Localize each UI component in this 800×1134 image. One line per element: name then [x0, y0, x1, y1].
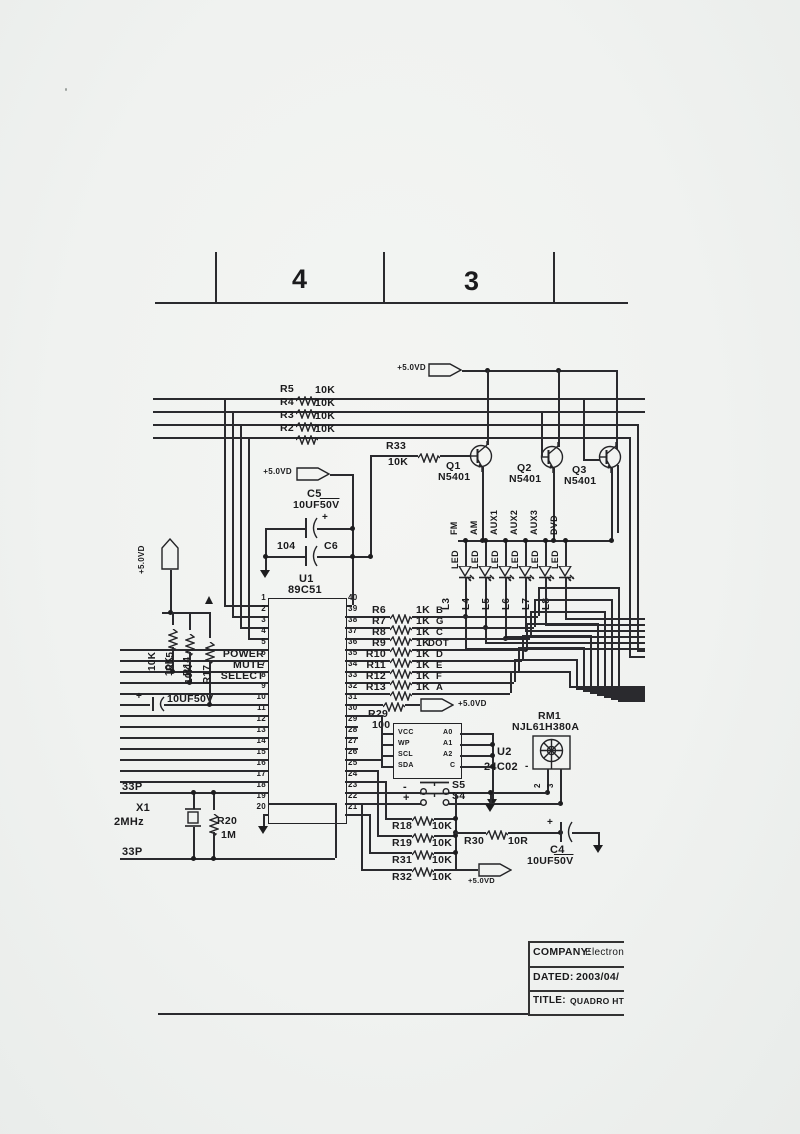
pin-number: 3: [236, 616, 266, 624]
plus-sign: +: [136, 692, 142, 702]
wire: [345, 759, 381, 761]
pin-number: 20: [236, 803, 266, 811]
wire: [330, 474, 352, 476]
pin-name-mute: MUTE: [214, 660, 264, 671]
transistor-ref: Q1: [446, 461, 461, 472]
wire: [553, 252, 555, 302]
wire: [369, 814, 371, 852]
led-function-label: AUX2: [510, 510, 519, 535]
power-net-label: +5.0VD: [468, 877, 495, 885]
wire: [345, 726, 358, 728]
wire: [305, 518, 307, 538]
resistor-value: 10K: [432, 821, 452, 832]
resistor-value: 1K: [416, 627, 430, 638]
wire: [412, 693, 510, 695]
resistor-value: 10K: [148, 652, 158, 671]
resistor-ref: R11: [352, 660, 386, 671]
junction-dot: [368, 554, 373, 559]
junction-dot: [211, 790, 216, 795]
resistor-ref: R12: [352, 671, 386, 682]
resistor-value: 10K: [432, 838, 452, 849]
wire: [604, 611, 606, 696]
resistor-symbol: [412, 813, 434, 831]
wire: [120, 704, 150, 706]
transistor-part: N5401: [564, 476, 596, 487]
led-icon: [458, 566, 476, 587]
net-label: G: [436, 617, 444, 627]
wire: [120, 770, 268, 772]
junction-dot: [263, 554, 268, 559]
switch-ref: S5: [452, 780, 465, 791]
ir-pin-label: 3: [547, 783, 555, 788]
wire: [510, 671, 569, 673]
u2-pin-label: VCC: [398, 729, 414, 736]
resistor-value: 1K: [416, 671, 430, 682]
zone-label-3: 3: [464, 268, 479, 295]
ic-ref: U2: [497, 747, 512, 758]
resistor-ref: R32: [392, 872, 412, 883]
resistor-value: 10R: [508, 836, 528, 847]
capacitor-icon: [156, 696, 166, 717]
wire: [611, 599, 613, 698]
wire: [265, 528, 267, 570]
wire: [604, 696, 645, 698]
wire: [213, 792, 215, 810]
resistor-value: 10K: [165, 657, 175, 676]
led-label: LED: [531, 550, 540, 569]
wire: [465, 540, 467, 566]
resistor-value: 10K: [315, 424, 335, 435]
cap-value: 33P: [122, 847, 142, 858]
wire: [590, 635, 592, 692]
wire: [224, 398, 226, 605]
resistor-ref: R3: [272, 410, 294, 421]
wire: [560, 769, 562, 803]
wire: [565, 540, 567, 566]
wire: [505, 540, 507, 566]
ground-icon: [260, 570, 270, 578]
resistor-ref: R19: [392, 838, 412, 849]
junction-dot: [453, 850, 458, 855]
ir-pin-label: 2: [534, 783, 542, 788]
wire: [510, 671, 512, 693]
led-function-label: AUX3: [530, 510, 539, 535]
wire: [583, 459, 600, 461]
wire: [482, 467, 484, 540]
power-net-label: +5.0VD: [252, 468, 292, 476]
net-label: C: [436, 628, 443, 638]
led-icon: [498, 566, 516, 587]
switch-s4-icon: [419, 791, 451, 811]
resistor-symbol: [412, 847, 434, 865]
net-label: DOT: [428, 639, 449, 649]
wire: [617, 465, 619, 533]
wire: [485, 578, 487, 642]
junction-dot: [609, 538, 614, 543]
resistor-value: 1M: [221, 830, 236, 841]
wire: [616, 370, 618, 449]
u2-pin-label: WP: [398, 740, 410, 747]
wire: [405, 704, 420, 706]
junction-dot: [350, 526, 355, 531]
wire: [381, 766, 393, 768]
wire: [189, 612, 191, 630]
wire: [377, 770, 379, 835]
wire: [381, 744, 393, 746]
wire: [155, 302, 628, 304]
wire: [120, 748, 268, 750]
resistor-ref: R33: [386, 441, 406, 452]
junction-dot: [490, 742, 495, 747]
wire: [522, 635, 590, 637]
u2-pin-label: A1: [443, 740, 453, 747]
wire: [597, 694, 645, 696]
pin-name-power: POWER: [214, 649, 264, 660]
led-ref: L7: [522, 598, 532, 610]
wire: [583, 647, 585, 690]
resistor-ref: R13: [352, 682, 386, 693]
wire: [158, 1013, 528, 1015]
wire: [583, 398, 585, 459]
zone-label-4: 4: [292, 266, 307, 293]
led-icon: [538, 566, 556, 587]
wire: [352, 474, 354, 605]
wire: [558, 370, 560, 447]
junction-dot: [480, 538, 485, 543]
led-ref: L3: [442, 598, 452, 610]
resistor-symbol: [412, 864, 434, 882]
wire: [345, 748, 358, 750]
wire: [526, 623, 597, 625]
wire: [152, 697, 154, 711]
ir-ref: RM1: [538, 711, 561, 722]
led-ref: L6: [502, 598, 512, 610]
led-label: LED: [471, 550, 480, 569]
wire: [305, 546, 307, 566]
junction-dot: [551, 538, 556, 543]
wire: [583, 690, 645, 692]
wire: [611, 698, 645, 700]
wire: [153, 398, 583, 400]
led-icon: [478, 566, 496, 587]
resistor-value: 10K: [432, 872, 452, 883]
junction-dot: [563, 538, 568, 543]
wire: [485, 642, 645, 644]
resistor-value: 10K: [315, 385, 335, 396]
wire: [412, 627, 534, 629]
wire: [590, 692, 645, 694]
resistor-ref: R2: [272, 423, 294, 434]
junction-dot: [490, 753, 495, 758]
wire: [597, 623, 599, 694]
wire: [569, 671, 571, 686]
wire: [455, 832, 486, 834]
wire: [576, 688, 645, 690]
wire: [345, 704, 383, 706]
dated-value: 2003/04/: [576, 972, 619, 983]
wire: [569, 686, 645, 688]
junction-dot: [211, 856, 216, 861]
transistor-part: N5401: [509, 474, 541, 485]
cap-value: 10UF50V: [527, 856, 573, 867]
wire: [534, 599, 611, 601]
junction-dot: [503, 538, 508, 543]
junction-dot: [191, 790, 196, 795]
resistor-value: 1K: [416, 649, 430, 660]
cap-value: 104: [277, 541, 295, 552]
led-label: LED: [511, 550, 520, 569]
wire: [583, 398, 645, 400]
wire: [508, 832, 560, 834]
transistor-part: N5401: [438, 472, 470, 483]
dated-label: DATED:: [533, 972, 574, 983]
title-block: COMPANY: Electron DATED: 2003/04/ TITLE:…: [528, 941, 624, 1017]
wire: [381, 715, 383, 766]
junction-dot: [191, 856, 196, 861]
resistor-value: 1K: [416, 660, 430, 671]
wire: [618, 587, 620, 700]
resistor-symbol: [486, 827, 508, 845]
wire: [317, 528, 352, 530]
junction-dot: [543, 538, 548, 543]
wire: [345, 770, 377, 772]
capacitor-icon: [564, 821, 574, 848]
net-label: A: [436, 683, 443, 693]
resistor-ref: R20: [217, 816, 237, 827]
wire: [120, 759, 268, 761]
resistor-value: 1K: [416, 682, 430, 693]
xtal-ref: X1: [136, 803, 150, 814]
power-net-label: +5.0VD: [396, 364, 426, 372]
ground-icon: [258, 826, 268, 834]
wire: [487, 370, 489, 445]
wire: [381, 755, 393, 757]
power-net-label: +5.0VD: [138, 545, 146, 574]
wire: [381, 733, 393, 735]
wire: [611, 468, 613, 540]
wire: [598, 832, 600, 845]
net-label: F: [436, 672, 442, 682]
company-value: Electron: [585, 948, 624, 958]
wire: [361, 803, 363, 869]
pin-name-select: SELECT: [214, 671, 264, 682]
resistor-ref: R10: [352, 649, 386, 660]
wire: [637, 424, 639, 650]
sign-label: +: [403, 793, 410, 804]
wire: [213, 832, 215, 858]
resistor-value: 1K: [416, 616, 430, 627]
wire: [449, 803, 560, 805]
wire: [120, 715, 268, 717]
wire: [514, 659, 576, 661]
wire: [345, 737, 358, 739]
wire: [618, 700, 645, 702]
wire: [530, 611, 604, 613]
wire: [345, 781, 385, 783]
resistor-ref: R8: [352, 627, 386, 638]
resistor-value: 10K: [185, 665, 195, 684]
wire: [120, 737, 268, 739]
wire: [172, 612, 174, 625]
power-net-label: +5.0VD: [458, 700, 487, 708]
plus-sign: +: [547, 818, 553, 828]
wire: [547, 769, 549, 792]
wire: [345, 814, 369, 816]
resistor-value: 10K: [432, 855, 452, 866]
wire: [525, 630, 645, 632]
wire: [541, 411, 543, 457]
resistor-ref: R4: [272, 397, 294, 408]
wire: [153, 411, 543, 413]
led-ref: L4: [462, 598, 472, 610]
wire: [560, 822, 562, 842]
cap-ref: C6: [324, 541, 338, 552]
transistor-ref: Q2: [517, 463, 532, 474]
led-label: LED: [551, 550, 560, 569]
led-icon: [558, 566, 576, 587]
wire: [545, 540, 547, 566]
transistor-ref: Q3: [572, 465, 587, 476]
led-function-label: DVD: [550, 515, 559, 535]
junction-dot: [207, 702, 212, 707]
pin-number: 1: [236, 594, 266, 602]
junction-dot: [488, 790, 493, 795]
resistor-value: 10K: [315, 411, 335, 422]
resistor-ref: R5: [272, 384, 294, 395]
title-label: TITLE:: [533, 996, 566, 1006]
resistor-ref: R18: [392, 821, 412, 832]
resistor-ref: R7: [352, 616, 386, 627]
wire: [263, 814, 265, 826]
junction-dot: [463, 538, 468, 543]
schematic-sheet: 4 3 COMPANY: Electron DATED: 2003/04/ TI…: [0, 0, 800, 1134]
u2-pin-label: A2: [443, 751, 453, 758]
net-label: E: [436, 661, 443, 671]
wire: [412, 616, 538, 618]
ir-part: NJL61H380A: [512, 722, 579, 733]
net-label: D: [436, 650, 443, 660]
led-function-label: AM: [470, 520, 479, 535]
wire: [153, 424, 637, 426]
resistor-symbol: [418, 450, 440, 468]
wire: [265, 556, 305, 558]
wire: [460, 755, 492, 757]
junction-dot: [523, 538, 528, 543]
power-arrow-icon: [296, 467, 330, 486]
arrow-up-icon: [205, 596, 213, 604]
resistor-ref: R31: [392, 855, 412, 866]
wire: [440, 455, 470, 457]
wire: [370, 455, 372, 556]
led-ref: L5: [482, 598, 492, 610]
led-function-label: FM: [450, 521, 459, 535]
wire: [215, 252, 217, 302]
wire: [637, 650, 645, 652]
wire: [120, 660, 268, 662]
capacitor-icon: [309, 517, 319, 544]
wire: [193, 827, 195, 858]
wire: [518, 647, 583, 649]
wire: [120, 726, 268, 728]
ic-part: 89C51: [288, 585, 322, 596]
led-function-label: AUX1: [490, 510, 499, 535]
ir-receiver-icon: [532, 735, 572, 776]
wire: [335, 803, 337, 858]
wire: [460, 766, 492, 768]
wire: [209, 612, 211, 638]
wire: [317, 556, 370, 558]
wire: [572, 832, 598, 834]
minus-sign: -: [525, 762, 529, 772]
wire: [120, 858, 335, 860]
u2-pin-label: C: [450, 762, 455, 769]
wire: [629, 656, 645, 658]
wire: [383, 252, 385, 302]
power-arrow-icon: [428, 363, 462, 382]
wire: [525, 540, 527, 566]
pin-number: 4: [236, 627, 266, 635]
wire: [460, 733, 492, 735]
wire: [530, 611, 532, 638]
u2-pin-label: SDA: [398, 762, 414, 769]
ic-part: 24C02: [484, 762, 518, 773]
junction-dot: [350, 554, 355, 559]
ground-icon: [593, 845, 603, 853]
led-label: LED: [491, 550, 500, 569]
u2-pin-label: SCL: [398, 751, 413, 758]
resistor-ref: R6: [352, 605, 386, 616]
cap-value: 10UF50V: [293, 500, 339, 511]
wire: [265, 528, 305, 530]
junction-dot: [453, 816, 458, 821]
led-label: LED: [451, 550, 460, 569]
scan-speck: [65, 88, 67, 91]
u2-pin-label: A0: [443, 729, 453, 736]
led-icon: [518, 566, 536, 587]
xtal-freq: 2MHz: [114, 817, 144, 828]
capacitor-icon: [309, 545, 319, 572]
wire: [232, 411, 234, 616]
wire: [193, 792, 195, 809]
resistor-value: 10K: [388, 457, 408, 468]
plus-sign: +: [322, 513, 328, 523]
resistor-value: 1K: [416, 605, 430, 616]
wire: [345, 693, 390, 695]
wire: [345, 715, 381, 717]
wire: [538, 587, 618, 589]
resistor-symbol: [412, 830, 434, 848]
wire: [170, 570, 172, 612]
pin-number: 2: [236, 605, 266, 613]
u1-ic-body: [268, 598, 347, 824]
cap-value: 33P: [122, 782, 142, 793]
wire: [485, 540, 487, 566]
pin-number: 40: [348, 594, 358, 602]
power-arrow-icon: [420, 698, 454, 717]
resistor-ref: R9: [352, 638, 386, 649]
wire: [268, 803, 335, 805]
resistor-ref: R30: [464, 836, 484, 847]
resistor-value: 10K: [315, 398, 335, 409]
wire: [460, 744, 492, 746]
junction-dot: [490, 764, 495, 769]
resistor-ref: R17: [203, 665, 213, 684]
pin-number: 5: [236, 638, 266, 646]
ground-icon: [485, 804, 495, 812]
net-label: B: [436, 606, 443, 616]
wire: [385, 781, 387, 818]
company-label: COMPANY:: [533, 947, 591, 958]
